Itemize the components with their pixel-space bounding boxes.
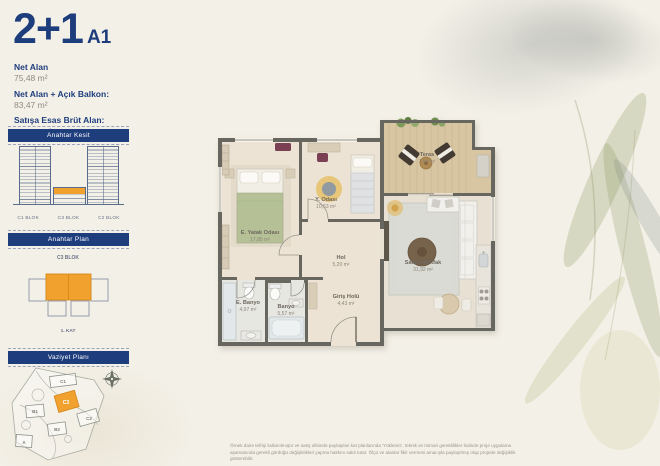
tv-unit (384, 221, 389, 261)
sliding-door (408, 193, 453, 196)
toilet (269, 284, 281, 300)
block-label: C2 BLOK (89, 216, 129, 221)
floor-lamp (387, 200, 403, 216)
site-plan-map: C1 C3 C2 B1 B2 A (6, 363, 130, 463)
shoe-cabinet (309, 283, 317, 309)
key-plan-floor-label: 1. KAT (61, 328, 76, 334)
room-name: E. Yatak Odası (241, 230, 280, 236)
room-name: Salon+Mutfak (405, 260, 442, 266)
bathroom-sink (241, 331, 261, 340)
unit-variant-label: A1 (87, 27, 111, 48)
unit-type-title: 2+1 (13, 5, 83, 53)
room-area: 4,43 m² (338, 301, 355, 307)
stat-net-area: Net Alan 75,48 m² (14, 62, 144, 85)
low-block-icon (53, 187, 86, 205)
stat-value: 75,48 m² (14, 73, 144, 84)
room-area: 7,90 m² (419, 159, 436, 165)
single-bed (351, 155, 374, 213)
block-label: C3 BLOK (48, 216, 88, 221)
highlighted-floor (54, 188, 85, 194)
block-labels-row: C1 BLOK C3 BLOK C2 BLOK (8, 216, 129, 221)
room-area: 31,92 m² (413, 267, 433, 273)
room-name: Y. Odası (315, 197, 337, 203)
stat-label: Net Alan (14, 62, 144, 73)
bathtub (269, 317, 304, 339)
site-block-label: C1 (60, 379, 66, 384)
site-block-label-highlighted: C3 (63, 400, 70, 406)
key-section-banner: Anahtar Kesit (8, 126, 129, 145)
floor-plan: E. Yatak Odası 17,85 m² Y. Odası 10,53 m… (213, 97, 498, 367)
key-plan-banner: Anahtar Plan (8, 230, 129, 249)
key-plan-highlighted-unit (46, 274, 91, 300)
room-area: 4,97 m² (240, 307, 257, 313)
stat-net-plus-balcony: Net Alan + Açık Balkon: 83,47 m² (14, 89, 144, 112)
key-plan-diagram: C3 BLOK 1. KAT (8, 247, 129, 345)
ac-unit (477, 155, 489, 177)
key-section-diagram (8, 143, 129, 215)
compass-icon (102, 369, 122, 389)
key-section-title: Anahtar Kesit (8, 129, 129, 142)
room-area: 5,20 m² (333, 262, 350, 268)
site-plan-title: Vaziyet Planı (8, 351, 129, 364)
stat-label: Satışa Esas Brüt Alan: (14, 115, 144, 126)
desk (308, 143, 340, 152)
disclaimer-text: Örnek daire tefrişi kullanılmıştır ve sa… (230, 443, 530, 463)
shower (223, 283, 236, 340)
room-area: 5,57 m² (278, 311, 295, 317)
accent-bench (275, 143, 291, 151)
site-block-label: B1 (32, 409, 38, 414)
room-area: 17,85 m² (250, 237, 270, 243)
tower-right-icon (87, 146, 119, 205)
room-area: 10,53 m² (316, 204, 336, 210)
room-name: Banyo (277, 304, 295, 310)
stat-label: Net Alan + Açık Balkon: (14, 89, 144, 100)
kitchen-sink (479, 254, 488, 267)
site-block-label: C2 (86, 416, 92, 421)
key-plan-title: Anahtar Plan (8, 233, 129, 246)
stove (479, 287, 490, 304)
room-name: Giriş Holü (333, 294, 360, 300)
stat-value: 83,47 m² (14, 100, 144, 111)
fridge (477, 314, 490, 326)
desk-chair (317, 153, 328, 162)
block-label: C1 BLOK (8, 216, 48, 221)
nightstand (286, 169, 295, 178)
site-block-label: B2 (54, 427, 60, 432)
round-rug-center (322, 182, 336, 196)
ground-line (13, 204, 124, 205)
room-name: Teras (420, 152, 435, 158)
open-passage (380, 229, 384, 259)
kitchen-counter (476, 245, 491, 328)
unit-title-block: 2+1A1 (13, 8, 111, 51)
room-name: Hol (336, 255, 345, 261)
tower-left-icon (19, 146, 51, 205)
room-name: E. Banyo (236, 300, 261, 306)
key-plan-block-label: C3 BLOK (57, 255, 79, 261)
brochure-page: 2+1A1 Net Alan 75,48 m² Net Alan + Açık … (0, 0, 660, 466)
